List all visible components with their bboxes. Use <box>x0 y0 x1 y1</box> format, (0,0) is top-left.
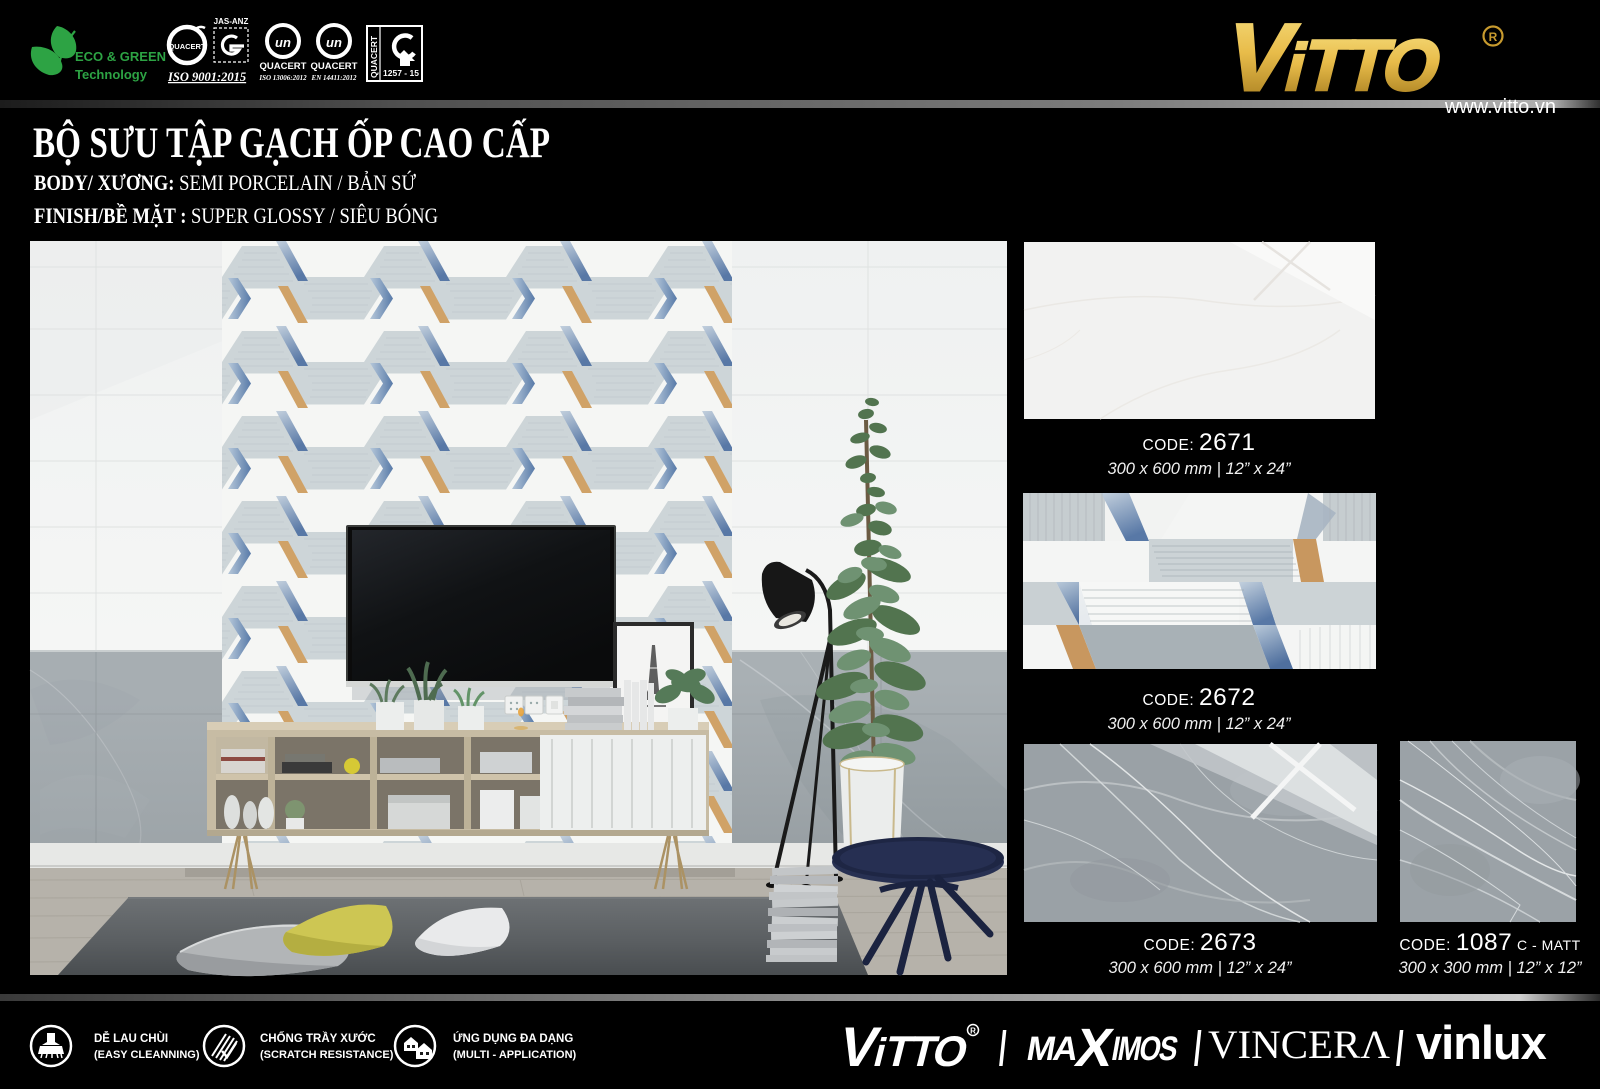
svg-text:un: un <box>275 35 291 50</box>
svg-text:CHỐNG TRẦY XƯỚC: CHỐNG TRẦY XƯỚC <box>260 1031 376 1045</box>
svg-text:JAS-ANZ: JAS-ANZ <box>214 17 249 26</box>
svg-text:(EASY CLEANNING): (EASY CLEANNING) <box>94 1049 200 1061</box>
svg-text:VINCERΛ: VINCERΛ <box>1208 1022 1390 1067</box>
svg-text:ỨNG DỤNG ĐA DẠNG: ỨNG DỤNG ĐA DẠNG <box>453 1032 573 1045</box>
svg-text:R: R <box>1489 30 1498 44</box>
svg-text:(SCRATCH RESISTANCE): (SCRATCH RESISTANCE) <box>260 1049 394 1061</box>
svg-text:TTO: TTO <box>880 1028 972 1076</box>
svg-text:ISO 13006:2012: ISO 13006:2012 <box>258 74 307 82</box>
svg-text:IMOS: IMOS <box>1109 1030 1181 1068</box>
svg-text:300 x 600 mm | 12” x 24”: 300 x 600 mm | 12” x 24” <box>1107 715 1292 733</box>
svg-text:300 x 600 mm | 12” x 24”: 300 x 600 mm | 12” x 24” <box>1108 959 1293 977</box>
svg-text:QUACERT: QUACERT <box>369 35 379 78</box>
svg-text:FINISH/BỀ MẶT : SUPER GLOSSY /: FINISH/BỀ MẶT : SUPER GLOSSY / SIÊU BÓNG <box>34 203 438 228</box>
svg-text:1257 - 15: 1257 - 15 <box>383 68 419 78</box>
svg-text:QUACERT: QUACERT <box>311 61 358 72</box>
svg-text:300 x 300 mm | 12” x 12”: 300 x 300 mm | 12” x 12” <box>1398 959 1583 977</box>
svg-text:DỄ LAU CHÙI: DỄ LAU CHÙI <box>94 1032 168 1045</box>
svg-text:BỘ SƯU TẬP GẠCH ỐP CAO CẤP: BỘ SƯU TẬP GẠCH ỐP CAO CẤP <box>33 119 550 167</box>
svg-text:MA: MA <box>1024 1030 1081 1068</box>
svg-text:www.vitto.vn: www.vitto.vn <box>1444 96 1556 118</box>
svg-text:TTO: TTO <box>1296 26 1448 106</box>
svg-text:ISO 9001:2015: ISO 9001:2015 <box>167 70 246 84</box>
svg-text:Technology: Technology <box>75 67 148 82</box>
svg-text:QUACERT: QUACERT <box>260 61 307 72</box>
svg-text:300 x 600 mm | 12” x 24”: 300 x 600 mm | 12” x 24” <box>1107 460 1292 478</box>
svg-text:R: R <box>970 1027 976 1036</box>
svg-text:un: un <box>326 35 342 50</box>
svg-text:BODY/ XƯƠNG: SEMI PORCELAIN /: BODY/ XƯƠNG: SEMI PORCELAIN / BẢN SỨ <box>34 170 417 195</box>
svg-text:(MULTI - APPLICATION): (MULTI - APPLICATION) <box>453 1049 577 1061</box>
svg-text:EN 14411:2012: EN 14411:2012 <box>311 74 357 82</box>
svg-text:ECO & GREEN: ECO & GREEN <box>75 49 166 64</box>
svg-text:vinlux: vinlux <box>1416 1016 1547 1069</box>
svg-text:QUACERT: QUACERT <box>168 42 206 51</box>
